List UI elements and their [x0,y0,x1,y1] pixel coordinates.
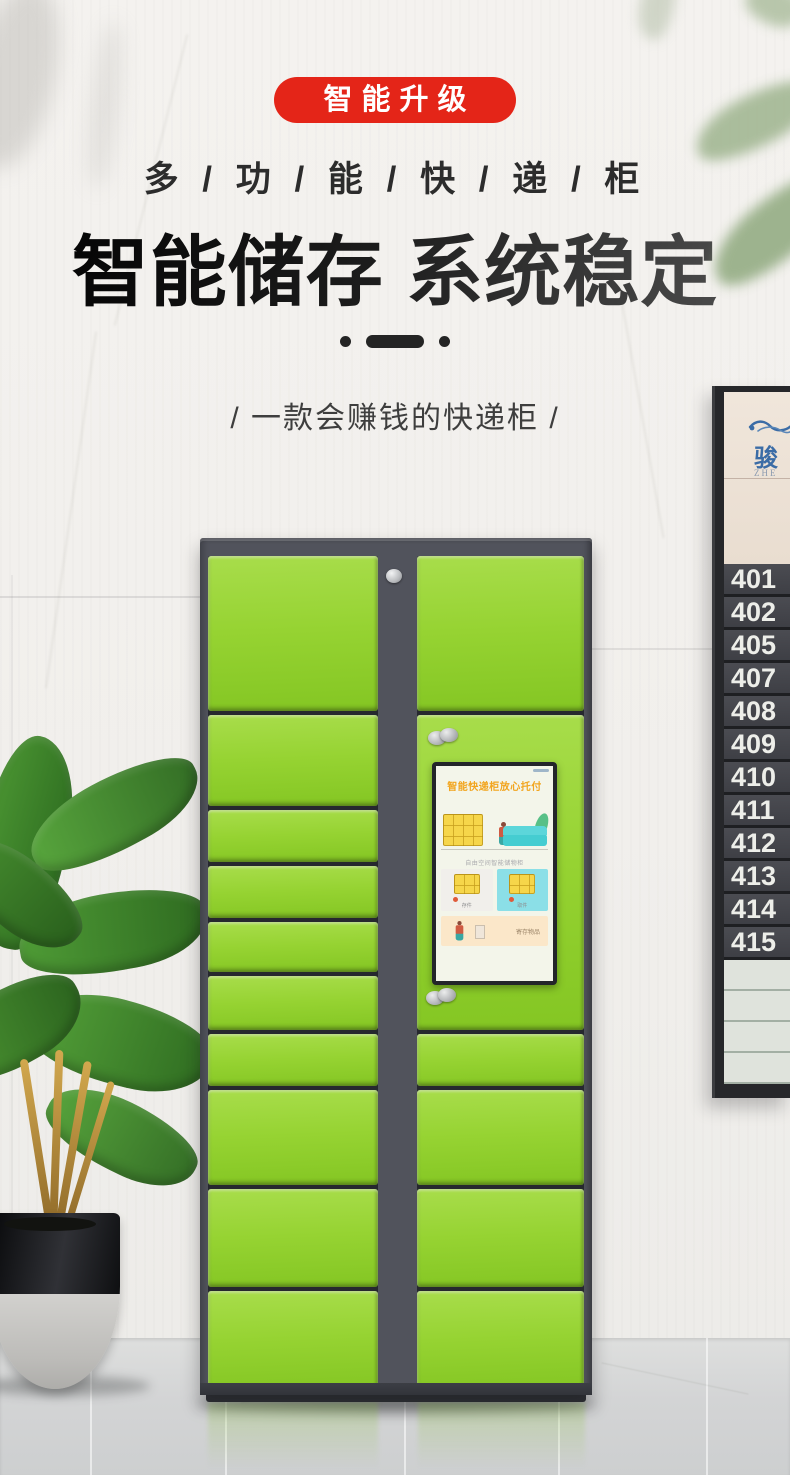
room-number: 407 [731,663,776,694]
screen-cards: 存件 取件 [441,869,548,911]
hero-title: 智能储存 系统稳定 [0,211,790,322]
sign-room-row: 401 [724,564,790,597]
locker-door [208,1189,378,1287]
room-number: 413 [731,861,776,892]
mini-locker-icon [443,814,483,846]
sign-empty-row [724,1022,790,1053]
locker-door [417,556,584,711]
sign-room-row: 407 [724,663,790,696]
locker-screen-panel: 智能快递柜放心托付 自由空间智能储物柜 存件 [417,715,584,1030]
sign-empty-row [724,1053,790,1084]
floor-reflection [208,1402,378,1468]
sign-room-row: 410 [724,762,790,795]
promo-badge: 智能升级 [0,77,790,123]
room-number: 401 [731,564,776,595]
locker-door [417,1291,584,1390]
kiosk-screen: 智能快递柜放心托付 自由空间智能储物柜 存件 [432,762,557,985]
mini-locker-icon [454,874,480,894]
locker-door [208,922,378,972]
room-number: 410 [731,762,776,793]
divider-dot-right [439,336,450,347]
mini-parcel-icon [475,925,485,939]
sign-room-row: 415 [724,927,790,960]
mini-sofa-icon [503,834,547,846]
locker-column-right: 智能快递柜放心托付 自由空间智能储物柜 存件 [417,556,584,1390]
screen-status-icon [533,769,549,772]
locker-door [417,1090,584,1185]
room-number: 411 [731,795,775,826]
screen-handle-top [428,731,462,748]
mini-locker-icon [509,874,535,894]
screen-card-pickup: 取件 [497,869,549,911]
card-label: 取件 [497,902,549,909]
cabinet-lock-icon [386,569,402,583]
room-number: 415 [731,927,776,958]
hero-subtitle: 多 / 功 / 能 / 快 / 递 / 柜 [0,151,790,202]
screen-bottom-card: 寄存物品 [441,916,548,946]
sign-empty-row [724,960,790,991]
room-number: 408 [731,696,776,727]
locker-door [208,1090,378,1185]
locker-door [417,1034,584,1086]
room-number: 405 [731,630,776,661]
locker-door [208,976,378,1030]
sign-room-row: 405 [724,630,790,663]
locker-column-left [208,556,378,1390]
sign-room-row: 414 [724,894,790,927]
sign-room-row: 413 [724,861,790,894]
card-label: 存件 [441,902,493,909]
promo-badge-label: 智能升级 [274,77,515,123]
divider-bar [366,335,424,348]
locker-door [208,1291,378,1390]
hero-divider [0,335,790,348]
sign-room-rows: 401 402 405 407 408 409 410 411 412 413 … [724,564,790,1084]
sign-room-row: 408 [724,696,790,729]
sign-logo-subtext: ZHE [754,468,778,478]
sign-empty-row [724,991,790,1022]
sign-logo-wave-icon [748,418,790,436]
cabinet-base [200,1383,592,1395]
locker-door [208,1034,378,1086]
locker-door [208,866,378,918]
hero-tagline: / 一款会赚钱的快递柜 / [0,393,790,437]
floor-reflection [418,1402,585,1468]
room-number: 412 [731,828,776,859]
room-number: 402 [731,597,776,628]
wall-seam [592,648,714,650]
plant-pot [0,1213,120,1389]
room-sign-board: 骏 ZHE 401 402 405 407 408 409 410 411 41… [712,386,790,1098]
room-number: 409 [731,729,776,760]
screen-handle-bottom [426,991,460,1008]
sign-header: 骏 ZHE [724,392,790,564]
locker-door [417,1189,584,1287]
bottom-card-label: 寄存物品 [516,927,540,936]
sign-face: 骏 ZHE 401 402 405 407 408 409 410 411 41… [724,392,790,1088]
locker-door [208,715,378,806]
screen-card-deposit: 存件 [441,869,493,911]
wall-seam [0,596,200,598]
sign-room-row: 411 [724,795,790,828]
sign-room-row: 402 [724,597,790,630]
screen-illustration [441,794,548,850]
sign-room-row: 409 [724,729,790,762]
cabinet-foot [206,1395,586,1402]
product-poster: 智能升级 多 / 功 / 能 / 快 / 递 / 柜 智能储存 系统稳定 / 一… [0,0,790,1475]
sign-room-row: 412 [724,828,790,861]
divider-dot-left [340,336,351,347]
locker-door [208,810,378,862]
locker-door [208,556,378,711]
screen-subtitle: 自由空间智能储物柜 [436,858,553,867]
parcel-locker-cabinet: 智能快递柜放心托付 自由空间智能储物柜 存件 [200,538,592,1395]
sign-divider-line [724,478,790,479]
screen-title: 智能快递柜放心托付 [436,778,553,793]
room-number: 414 [731,894,776,925]
